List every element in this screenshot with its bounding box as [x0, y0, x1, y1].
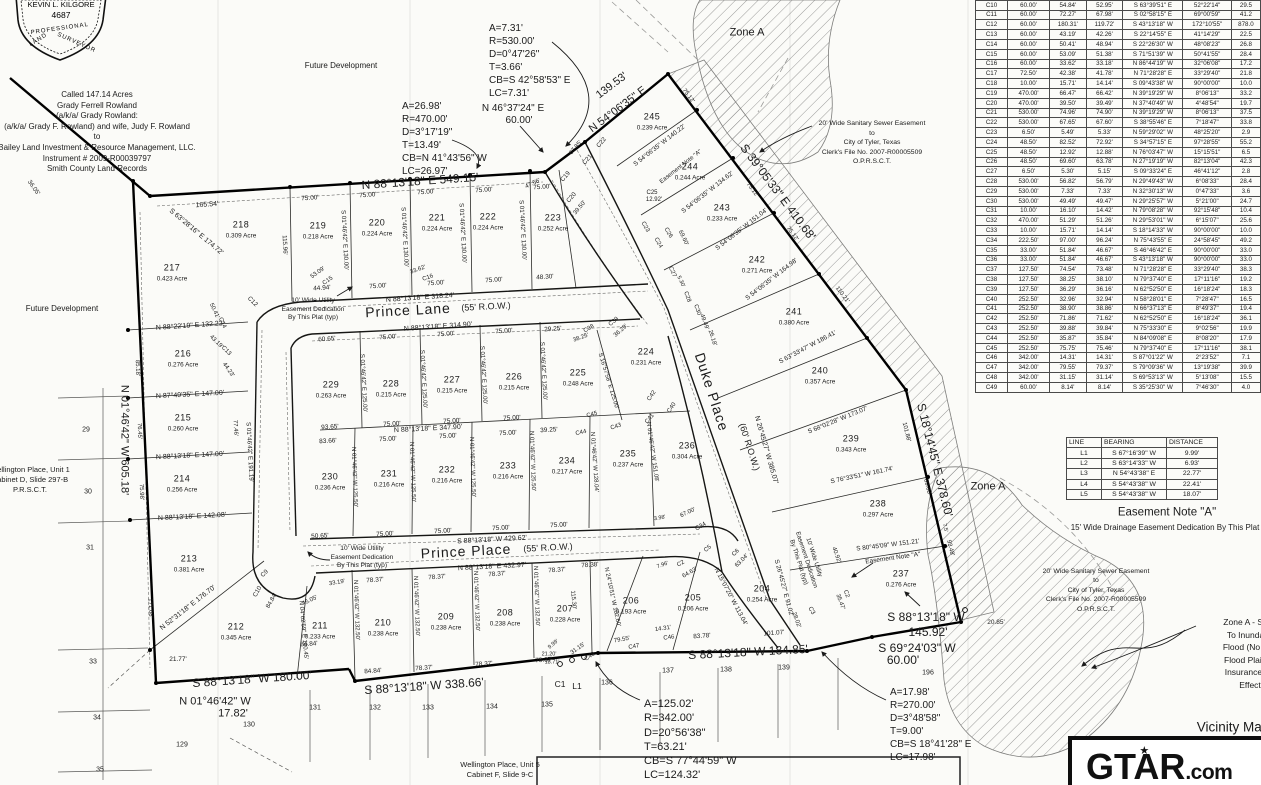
lot-acreage: 0.238 Acre	[490, 620, 521, 627]
lot-number: 231	[374, 468, 405, 478]
lot-acreage: 0.238 Acre	[368, 630, 399, 637]
lot-acreage: 0.193 Acre	[616, 608, 647, 615]
lot-label: 2050.206 Acre	[678, 592, 709, 612]
curve-value: 96.24'	[1086, 235, 1123, 245]
lot-number: 221	[422, 212, 453, 222]
dimension-label: 18.71'	[545, 660, 560, 666]
curve-value: 3.6	[1231, 186, 1260, 196]
dimension-label: 75.00'	[550, 522, 568, 529]
note-line: City of Tyler, Texas	[819, 138, 926, 148]
lot-acreage: 0.254 Acre	[747, 596, 778, 603]
line-value: 18.07'	[1167, 489, 1218, 499]
lot-number: 205	[678, 592, 709, 602]
curve-value: 127.50'	[1008, 275, 1050, 285]
curve-value: 52°22'14"	[1183, 0, 1231, 10]
note-line: O.P.R.S.C.T.	[819, 157, 926, 167]
lot-label: 2140.256 Acre	[167, 473, 198, 493]
curve-value: 8°49'37"	[1183, 304, 1231, 314]
curve-value: N 37°40'49" W	[1123, 98, 1183, 108]
note-line: Wellington Place, Unit 1	[0, 465, 70, 475]
curve-value: N 76°03'47" W	[1123, 147, 1183, 157]
curve-value: 75.75'	[1049, 343, 1086, 353]
curve-value: 48°08'23"	[1183, 39, 1231, 49]
lot-label: 2250.248 Acre	[563, 367, 594, 387]
curve-value: 42.3	[1231, 157, 1260, 167]
curve-data-line: D=0°47'26"	[489, 48, 570, 61]
lot-number: 227	[437, 374, 468, 384]
curve-value: 470.00'	[1008, 88, 1050, 98]
curve-value: 54.84'	[1049, 0, 1086, 10]
curve-value: 6°15'07"	[1183, 216, 1231, 226]
lot-acreage: 0.256 Acre	[167, 486, 198, 493]
lot-number: 219	[303, 220, 334, 230]
curve-value: 69.60'	[1049, 157, 1086, 167]
curve-value: N 59°29'02" W	[1123, 128, 1183, 138]
curve-value: S 79°09'36" W	[1123, 363, 1183, 373]
curve-value: 28.4	[1231, 177, 1260, 187]
curve-value: 15.5	[1231, 373, 1260, 383]
curve-data-line: A=125.02'	[644, 697, 737, 711]
dimension-label: N 46°37'24" E	[482, 104, 544, 114]
line-id: L4	[1067, 479, 1102, 489]
lot-number: 232	[432, 464, 463, 474]
dimension-label: 78.38'	[581, 562, 599, 570]
curve-value: 10.0	[1231, 226, 1260, 236]
lot-label: 2200.224 Acre	[362, 217, 393, 237]
line-table-header: LINE	[1067, 438, 1102, 448]
lot-label: 2440.244 Acre	[675, 161, 706, 181]
lot-label: 2150.260 Acre	[168, 412, 199, 432]
lot-label: 2170.423 Acre	[157, 262, 188, 282]
curve-value: 41°14'29"	[1183, 30, 1231, 40]
dimension-label: 75.00'	[379, 436, 397, 443]
curve-value: 5.49'	[1049, 128, 1086, 138]
curve-value: N 58°28'01" E	[1123, 294, 1183, 304]
curve-value: 56.79'	[1086, 177, 1123, 187]
curve-value: 15.71'	[1049, 226, 1086, 236]
curve-value: 38.3	[1231, 265, 1260, 275]
curve-id: C17	[976, 69, 1008, 79]
curve-value: 180.31'	[1049, 20, 1086, 30]
lot-label: 2280.215 Acre	[376, 378, 407, 398]
note-line: P.R.S.C.T.	[0, 485, 70, 495]
curve-value: N 39°19'29" W	[1123, 88, 1183, 98]
curve-value: 252.50'	[1008, 343, 1050, 353]
dimension-label: 171.08'	[147, 598, 154, 618]
lot-label: 2220.224 Acre	[473, 211, 504, 231]
curve-value: 26.8	[1231, 39, 1260, 49]
lot-number: 214	[167, 473, 198, 483]
curve-value: 530.00'	[1008, 108, 1050, 118]
line-value: 9.99'	[1167, 448, 1218, 458]
curve-value: 72.27'	[1049, 10, 1086, 20]
curve-value: 470.00'	[1008, 216, 1050, 226]
dimension-label: 75.00'	[369, 283, 387, 291]
note-line: Wellington Place, Unit 5	[460, 760, 540, 770]
curve-value: 46.67'	[1086, 245, 1123, 255]
curve-value: 17°11'16"	[1183, 343, 1231, 353]
curve-value: 41.78'	[1086, 69, 1123, 79]
dimension-label: 84.84'	[364, 668, 382, 676]
curve-value: 49.47'	[1086, 196, 1123, 206]
lot-acreage: 0.276 Acre	[886, 581, 917, 588]
adjacent-lot-number: 139	[778, 665, 790, 672]
curve-value: 35.84'	[1086, 333, 1123, 343]
curve-value: 10.00'	[1008, 226, 1050, 236]
curve-value: 342.00'	[1008, 373, 1050, 383]
curve-value: S 09°43'38" W	[1123, 79, 1183, 89]
note-line: (a/k/a/ Grady Rowland:	[0, 111, 196, 122]
dimension-label: 75.00'	[437, 331, 455, 339]
curve-value: 10.4	[1231, 206, 1260, 216]
curve-value: 51.84'	[1049, 255, 1086, 265]
curve-id: C49	[976, 382, 1008, 392]
curve-value: 67.65'	[1049, 118, 1086, 128]
curve-value: N 79°37'40" E	[1123, 275, 1183, 285]
curve-value: 8°08'20"	[1183, 333, 1231, 343]
dimension-label: 7.5'	[940, 523, 947, 533]
lot-acreage: 0.231 Acre	[631, 359, 662, 366]
dimension-label: 60.00'	[506, 116, 533, 126]
dimension-label: 76.45'	[136, 423, 143, 439]
dimension-label: 75.00'	[443, 418, 461, 425]
note-line: Bailey Land Investment & Resource Manage…	[0, 143, 196, 154]
curve-value: 51.26'	[1086, 216, 1123, 226]
curve-value: 10.00'	[1008, 206, 1050, 216]
curve-value: N 75°33'30" E	[1123, 324, 1183, 334]
lot-acreage: 0.297 Acre	[863, 511, 894, 518]
curve-value: 75.46'	[1086, 343, 1123, 353]
lot-number: 213	[174, 553, 205, 563]
curve-value: 71.62'	[1086, 314, 1123, 324]
curve-value: 16°18'24"	[1183, 284, 1231, 294]
dimension-label: 75.00'	[434, 528, 452, 535]
lot-label: 2400.357 Acre	[805, 365, 836, 385]
curve-value: S 43°13'18" W	[1123, 255, 1183, 265]
curve-value: 7.1	[1231, 353, 1260, 363]
curve-id: C15	[976, 49, 1008, 59]
curve-data-line: A=17.98'	[890, 686, 971, 699]
line-table: LINEBEARINGDISTANCEL1S 67°16'39" W9.99'L…	[1066, 437, 1218, 500]
curve-value: 16.10'	[1049, 206, 1086, 216]
curve-value: 7°46'30"	[1183, 382, 1231, 392]
curve-value: 49.49'	[1049, 196, 1086, 206]
curve-value: 15.71'	[1049, 79, 1086, 89]
dimension-label: 77.46'	[232, 420, 239, 436]
curve-value: 50°41'55"	[1183, 49, 1231, 59]
curve-value: S 09°33'24" E	[1123, 167, 1183, 177]
curve-value: 21.8	[1231, 69, 1260, 79]
curve-value: 39.9	[1231, 363, 1260, 373]
curve-value: 33.00'	[1008, 255, 1050, 265]
curve-value: 8.14'	[1086, 382, 1123, 392]
curve-value: 252.50'	[1008, 294, 1050, 304]
lot-acreage: 0.218 Acre	[303, 233, 334, 240]
curve-value: 97°28'55"	[1183, 137, 1231, 147]
curve-value: 172°10'55"	[1183, 20, 1231, 30]
lot-number: 209	[431, 611, 462, 621]
lot-label: 2300.236 Acre	[315, 471, 346, 491]
curve-value: 60.00'	[1008, 59, 1050, 69]
curve-value: 39.50'	[1049, 98, 1086, 108]
lot-label: 2210.224 Acre	[422, 212, 453, 232]
curve-value: 5.15'	[1086, 167, 1123, 177]
curve-value: N 62°52'50" E	[1123, 314, 1183, 324]
curve-value: N 39°19'29" W	[1123, 108, 1183, 118]
curve-value: 342.00'	[1008, 353, 1050, 363]
curve-value: 38.90'	[1049, 304, 1086, 314]
lot-acreage: 0.380 Acre	[779, 319, 810, 326]
curve-id: C31	[976, 206, 1008, 216]
lot-acreage: 0.345 Acre	[221, 634, 252, 641]
curve-table: C960.00'45.09'44.06'N 68°03'29" E43°01'1…	[975, 0, 1261, 393]
curve-value: N 71°28'28" E	[1123, 69, 1183, 79]
curve-data-line: LC=7.31'	[489, 87, 570, 100]
curve-value: 36.16'	[1086, 284, 1123, 294]
curve-value: 119.72'	[1086, 20, 1123, 30]
curve-value: 49.2	[1231, 235, 1260, 245]
curve-value: S 22°14'55" E	[1123, 30, 1183, 40]
zone-a-label: Zone A	[971, 482, 1006, 493]
curve-value: 48.50'	[1008, 157, 1050, 167]
curve-value: 14.14'	[1086, 226, 1123, 236]
dimension-label: 21.77'	[169, 657, 187, 664]
curve-value: 38.1	[1231, 343, 1260, 353]
lot-label: 2040.254 Acre	[747, 583, 778, 603]
lot-acreage: 0.236 Acre	[315, 484, 346, 491]
lot-number: 245	[637, 111, 668, 121]
lot-label: 2180.309 Acre	[226, 219, 257, 239]
lot-number: 237	[886, 568, 917, 578]
dimension-label: C25	[646, 190, 657, 196]
dimension-label: 115.96'	[280, 235, 287, 255]
curve-data-line: A=26.98'	[402, 100, 487, 113]
adjacent-lot-number: 129	[176, 742, 188, 749]
lot-number: 218	[226, 219, 257, 229]
lot-acreage: 0.215 Acre	[376, 391, 407, 398]
line-id: L2	[1067, 458, 1102, 468]
lot-acreage: 0.423 Acre	[157, 275, 188, 282]
dimension-label: 21.20'	[542, 652, 557, 658]
lot-label: 2270.215 Acre	[437, 374, 468, 394]
curve-value: 38.25'	[1049, 275, 1086, 285]
adjacent-lot-number: 131	[309, 705, 321, 712]
curve-id: C42	[976, 314, 1008, 324]
curve-id: C36	[976, 255, 1008, 265]
dimension-label: 78.37'	[488, 571, 506, 579]
curve-id: C44	[976, 333, 1008, 343]
curve-value: 530.00'	[1008, 177, 1050, 187]
lot-number: 206	[616, 595, 647, 605]
note-line: Clerk's File No. 2007-R00005509	[819, 148, 926, 158]
curve-data-callout: A=17.98'R=270.00'D=3°48'58"T=9.00'CB=S 1…	[890, 686, 971, 764]
curve-value: 48.50'	[1008, 137, 1050, 147]
lot-number: 230	[315, 471, 346, 481]
lot-number: 243	[707, 202, 738, 212]
curve-value: S 87°01'22" W	[1123, 353, 1183, 363]
curve-value: 33.8	[1231, 118, 1260, 128]
curve-value: 90°00'00"	[1183, 226, 1231, 236]
note-line: Easement Dedication	[331, 554, 394, 563]
lot-acreage: 0.237 Acre	[613, 461, 644, 468]
curve-value: 60.00'	[1008, 382, 1050, 392]
lot-number: 235	[613, 448, 644, 458]
curve-value: 6°08'33"	[1183, 177, 1231, 187]
adjacent-lot-number: 133	[422, 705, 434, 712]
dimension-label: 60.65'	[318, 336, 336, 344]
lot-label: 2100.238 Acre	[368, 617, 399, 637]
curve-id: C16	[976, 59, 1008, 69]
lot-label: 2130.381 Acre	[174, 553, 205, 573]
lot-number: 211	[305, 620, 336, 630]
curve-value: 33.18'	[1086, 59, 1123, 69]
dimension-label: 75.98'	[138, 484, 145, 500]
lot-label: 2290.263 Acre	[316, 379, 347, 399]
curve-value: 6.5	[1231, 147, 1260, 157]
lot-acreage: 0.215 Acre	[499, 384, 530, 391]
lot-number: 204	[747, 583, 778, 593]
logo-text: GT	[1086, 746, 1133, 785]
lot-label: 2190.218 Acre	[303, 220, 334, 240]
dimension-label: C1	[555, 680, 566, 689]
line-value: 22.77'	[1167, 469, 1218, 479]
lot-number: 244	[675, 161, 706, 171]
note-line: Insurance Ra	[1223, 666, 1261, 679]
curve-value: 72.92'	[1086, 137, 1123, 147]
lot-label: 2390.343 Acre	[836, 433, 867, 453]
seal-name: KEVIN L. KILGORE	[27, 0, 94, 9]
curve-value: 72.50'	[1008, 69, 1050, 79]
curve-value: 24.7	[1231, 196, 1260, 206]
note-line: Zone A - Spec	[1223, 616, 1261, 629]
adjacent-lot-number: 35	[96, 767, 104, 774]
note-line: Instrument # 2009-R00039797	[0, 154, 196, 165]
curve-value: 22.5	[1231, 30, 1260, 40]
lot-acreage: 0.357 Acre	[805, 378, 836, 385]
lot-number: 233	[493, 460, 524, 470]
curve-value: N 66°37'13" E	[1123, 304, 1183, 314]
note-line: City of Tyler, Texas	[1043, 586, 1150, 595]
lot-label: 2370.276 Acre	[886, 568, 917, 588]
curve-value: 25.6	[1231, 216, 1260, 226]
curve-id: C22	[976, 118, 1008, 128]
lot-label: 2260.215 Acre	[499, 371, 530, 391]
curve-value: 8.14'	[1049, 382, 1086, 392]
logo-text: R	[1159, 746, 1185, 785]
curve-id: C37	[976, 265, 1008, 275]
adjacent-lot-number: 30	[84, 489, 92, 496]
curve-value: S 35°25'30" W	[1123, 382, 1183, 392]
curve-value: 39.49'	[1086, 98, 1123, 108]
curve-data-line: CB=N 41°43'56" W	[402, 152, 487, 165]
curve-value: 66.47'	[1049, 88, 1086, 98]
curve-value: 5°13'08"	[1183, 373, 1231, 383]
curve-id: C34	[976, 235, 1008, 245]
curve-value: 31.15'	[1049, 373, 1086, 383]
lot-acreage: 0.343 Acre	[836, 446, 867, 453]
curve-data-line: LC=17.98'	[890, 751, 971, 764]
curve-value: 17°11'16"	[1183, 275, 1231, 285]
line-value: S 54°43'38" W	[1102, 479, 1167, 489]
lot-acreage: 0.260 Acre	[168, 425, 199, 432]
curve-value: 33.0	[1231, 255, 1260, 265]
curve-value: N 71°28'28" E	[1123, 265, 1183, 275]
note-line: Called 147.14 Acres	[0, 90, 196, 101]
curve-data-line: T=13.49'	[402, 139, 487, 152]
dimension-label: 75.00'	[499, 430, 517, 437]
lot-acreage: 0.271 Acre	[742, 267, 773, 274]
curve-value: N 29°53'01" W	[1123, 216, 1183, 226]
curve-value: 530.00'	[1008, 186, 1050, 196]
curve-value: 67.98'	[1086, 10, 1123, 20]
adjacent-lot-number: 135	[541, 702, 553, 709]
adjacent-lot-number: 33	[89, 659, 97, 666]
curve-value: 12.92'	[1049, 147, 1086, 157]
dimension-label: 39.25'	[540, 427, 558, 434]
lot-acreage: 0.263 Acre	[316, 392, 347, 399]
curve-value: 5.30'	[1049, 167, 1086, 177]
curve-value: N 75°43'55" E	[1123, 235, 1183, 245]
curve-value: 33.0	[1231, 245, 1260, 255]
note-line: To Inundatio	[1223, 629, 1261, 642]
curve-value: 39.84'	[1086, 324, 1123, 334]
line-value: S 67°16'39" W	[1102, 448, 1167, 458]
dimension-label: 78.37'	[428, 574, 446, 582]
curve-value: S 02°58'15" E	[1123, 10, 1183, 20]
dimension-label: 78.37'	[366, 577, 384, 585]
note-line: Easement Dedication	[282, 306, 345, 315]
curve-id: C38	[976, 275, 1008, 285]
lot-acreage: 0.304 Acre	[672, 453, 703, 460]
line-value: S 54°43'38" W	[1102, 489, 1167, 499]
curve-value: 66.42'	[1086, 88, 1123, 98]
curve-id: C23	[976, 128, 1008, 138]
vicinity-map-title: Vicinity Map	[1197, 720, 1261, 735]
curve-value: 14.14'	[1086, 79, 1123, 89]
easement-note-a-text: 15' Wide Drainage Easement Dedication By…	[1071, 524, 1260, 532]
adjacent-lot-number: 137	[662, 668, 674, 675]
curve-value: 7.33'	[1049, 186, 1086, 196]
dimension-label: 85.18'	[134, 360, 141, 376]
lot-acreage: 0.216 Acre	[493, 473, 524, 480]
curve-value: 5°21'00"	[1183, 196, 1231, 206]
curve-value: 35.87'	[1049, 333, 1086, 343]
logo-letter-a: A★	[1133, 746, 1159, 785]
curve-value: 38.86'	[1086, 304, 1123, 314]
curve-data-line: R=470.00'	[402, 113, 487, 126]
note-line: 20' Wide Sanitary Sewer Easement	[819, 119, 926, 129]
curve-data-line: LC=26.97'	[402, 165, 487, 178]
lot-label: 2410.380 Acre	[779, 306, 810, 326]
curve-value: 55.2	[1231, 137, 1260, 147]
curve-value: 42.38'	[1049, 69, 1086, 79]
curve-value: 7.33'	[1086, 186, 1123, 196]
curve-value: S 71°51'39" W	[1123, 49, 1183, 59]
curve-id: C28	[976, 177, 1008, 187]
dimension-label: 12.92'	[646, 197, 662, 203]
curve-value: 17.2	[1231, 59, 1260, 69]
curve-value: 19.4	[1231, 304, 1260, 314]
curve-data-line: T=3.66'	[489, 61, 570, 74]
curve-id: C10	[976, 0, 1008, 10]
lot-number: 215	[168, 412, 199, 422]
lot-acreage: 0.216 Acre	[432, 477, 463, 484]
curve-value: 52.95'	[1086, 0, 1123, 10]
note-line: 20' Wide Sanitary Sewer Easement	[1043, 567, 1150, 576]
curve-value: 33°29'40"	[1183, 69, 1231, 79]
lot-number: 220	[362, 217, 393, 227]
dimension-label: 75.00'	[495, 328, 513, 336]
